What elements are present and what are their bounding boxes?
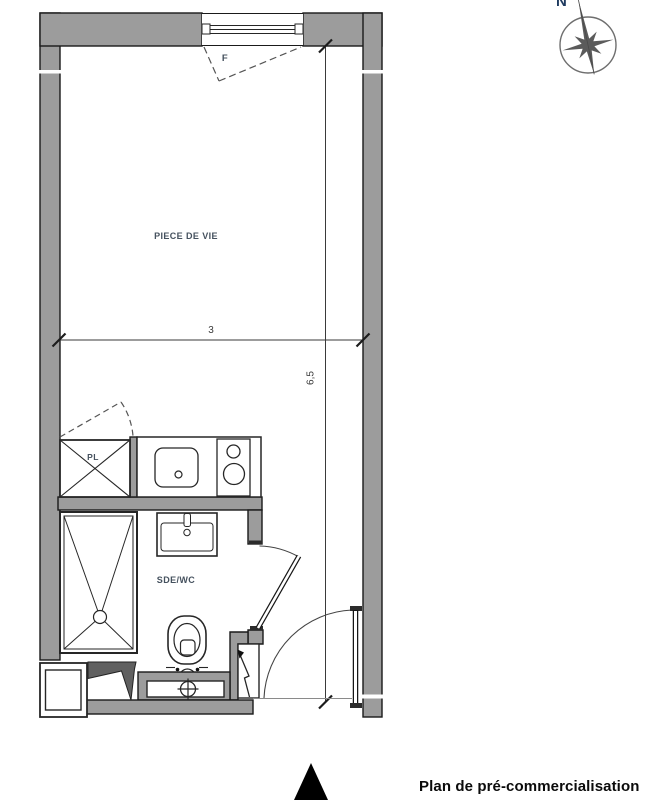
wall-strip-closet xyxy=(130,437,137,497)
dimension-width: 3 xyxy=(53,325,370,347)
washbasin-tap-knob xyxy=(184,529,190,535)
compass-star xyxy=(553,0,620,80)
toilet-bolt xyxy=(176,668,180,672)
electrical-niche xyxy=(238,644,260,698)
toilet-flush xyxy=(181,640,196,655)
washbasin-tap xyxy=(184,514,191,527)
kitchen-unit xyxy=(137,437,261,497)
shower-tray xyxy=(60,512,137,653)
floor-plan-drawing: 3 6,5 xyxy=(0,0,655,800)
washbasin xyxy=(157,513,217,556)
door-leaf-inner xyxy=(258,556,299,628)
caption-title: Plan de pré-commercialisation xyxy=(419,778,655,795)
logo-triangle xyxy=(294,763,328,800)
duct-shaft xyxy=(88,662,136,700)
closet-swing-dashed xyxy=(60,402,133,437)
hob-burner-small xyxy=(227,445,240,458)
floor-drain-inset xyxy=(147,679,224,700)
window-frame-block xyxy=(202,24,210,34)
dimension-height-label: 6,5 xyxy=(306,371,317,385)
closet-unit xyxy=(60,402,133,497)
wall-joint-break xyxy=(38,70,62,74)
toilet-bolt xyxy=(196,668,200,672)
floor-plan-page: 3 6,5 xyxy=(0,0,655,800)
room-label-closet: PL xyxy=(87,452,99,462)
dimension-width-label: 3 xyxy=(208,325,214,336)
dimension-height: 6,5 xyxy=(306,40,333,709)
kitchen-sink xyxy=(155,448,198,487)
compass-rose: N xyxy=(553,0,620,80)
window-assembly xyxy=(202,14,303,82)
door-swing-arc xyxy=(260,546,300,557)
sink-drain xyxy=(175,471,182,478)
north-label: N xyxy=(556,0,567,10)
external-box xyxy=(40,663,87,717)
wall-joint-break xyxy=(361,70,384,74)
wall-right xyxy=(363,13,382,717)
wall-top-left xyxy=(40,13,202,46)
wall-bath-door-stub xyxy=(248,630,263,644)
toilet xyxy=(166,616,208,672)
wall-left xyxy=(40,13,60,660)
external-box-outer xyxy=(40,663,87,717)
window-frame-block xyxy=(295,24,303,34)
room-label-living: PIECE DE VIE xyxy=(154,231,218,241)
entrance-door xyxy=(253,606,362,708)
window-swing-dashed xyxy=(204,47,301,81)
door-swing-arc xyxy=(264,610,352,698)
wall-bath-east-upper xyxy=(248,510,262,544)
shower-drain xyxy=(94,611,107,624)
bathroom-door xyxy=(249,541,299,631)
room-label-bathroom: SDE/WC xyxy=(157,575,196,585)
hob-burner-large xyxy=(224,464,245,485)
shower-outer xyxy=(60,512,137,653)
wall-bottom xyxy=(85,700,253,714)
wall-kitchen-divider xyxy=(58,497,262,510)
door-foot-cap xyxy=(350,703,362,708)
window-label: F xyxy=(222,53,228,64)
door-jamb-cap xyxy=(249,541,262,545)
